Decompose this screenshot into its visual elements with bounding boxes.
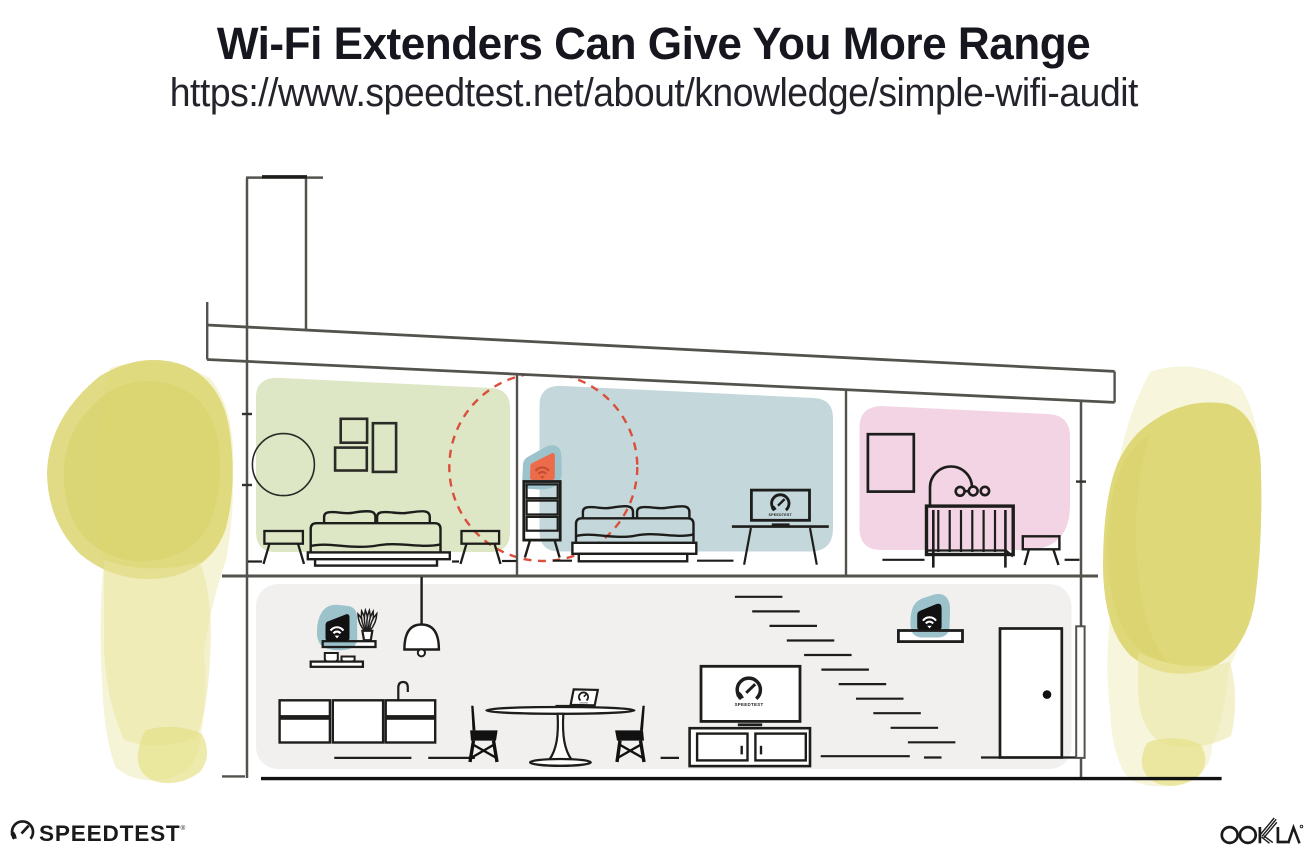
svg-text:SPEEDTEST: SPEEDTEST (769, 513, 793, 517)
svg-text:SPEEDTEST: SPEEDTEST (39, 821, 181, 846)
svg-text:SPEEDTEST: SPEEDTEST (735, 702, 764, 707)
svg-text:®: ® (181, 824, 186, 832)
